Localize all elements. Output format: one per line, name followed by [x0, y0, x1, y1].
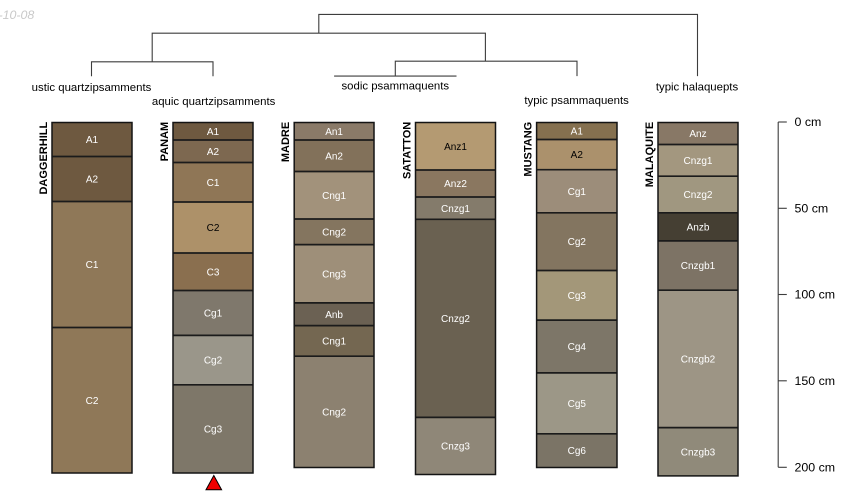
- svg-text:MUSTANG: MUSTANG: [523, 122, 535, 177]
- svg-text:Cnzg2: Cnzg2: [684, 190, 713, 201]
- svg-text:Cnzgb1: Cnzgb1: [681, 261, 716, 272]
- svg-text:Cg6: Cg6: [568, 446, 587, 457]
- svg-text:C3: C3: [207, 267, 220, 278]
- svg-text:Cnzgb2: Cnzgb2: [681, 355, 716, 366]
- svg-text:MALAQUITE: MALAQUITE: [644, 122, 656, 187]
- svg-text:A2: A2: [207, 147, 220, 158]
- svg-text:typic psammaquents: typic psammaquents: [524, 95, 629, 107]
- svg-text:sodic psammaquents: sodic psammaquents: [341, 81, 449, 93]
- svg-text:Cg2: Cg2: [568, 237, 587, 248]
- svg-text:Cnzg3: Cnzg3: [441, 442, 470, 453]
- svg-text:SATATTON: SATATTON: [402, 122, 414, 179]
- svg-text:Cg1: Cg1: [568, 187, 587, 198]
- svg-text:Cg2: Cg2: [204, 356, 223, 367]
- svg-text:Anz: Anz: [689, 129, 706, 140]
- svg-text:Cnzg1: Cnzg1: [684, 156, 713, 167]
- svg-text:typic halaquepts: typic halaquepts: [656, 81, 739, 93]
- svg-text:A1: A1: [571, 127, 584, 138]
- svg-text:aquic quartzipsamments: aquic quartzipsamments: [152, 96, 276, 108]
- svg-text:Cng3: Cng3: [322, 269, 346, 280]
- svg-text:50 cm: 50 cm: [795, 202, 829, 216]
- svg-text:Cnzgb3: Cnzgb3: [681, 447, 716, 458]
- svg-text:An2: An2: [325, 151, 343, 162]
- svg-text:A1: A1: [207, 127, 220, 138]
- svg-text:Cng2: Cng2: [322, 408, 346, 419]
- svg-text:C2: C2: [86, 396, 99, 407]
- svg-text:Cg3: Cg3: [204, 425, 223, 436]
- svg-text:MADRE: MADRE: [280, 122, 292, 162]
- svg-text:Anb: Anb: [325, 310, 343, 321]
- svg-text:150 cm: 150 cm: [795, 374, 836, 388]
- svg-text:Cng2: Cng2: [322, 227, 346, 238]
- svg-text:200 cm: 200 cm: [795, 461, 836, 475]
- svg-text:DAGGERHILL: DAGGERHILL: [38, 122, 50, 195]
- svg-text:A2: A2: [571, 150, 584, 161]
- svg-text:Anz1: Anz1: [444, 142, 467, 153]
- svg-text:PANAM: PANAM: [159, 122, 171, 162]
- svg-text:0 cm: 0 cm: [795, 115, 822, 129]
- svg-text:Cnzg1: Cnzg1: [441, 204, 470, 215]
- svg-text:-10-08: -10-08: [0, 8, 34, 22]
- svg-text:Cg1: Cg1: [204, 309, 223, 320]
- svg-text:100 cm: 100 cm: [795, 288, 836, 302]
- svg-text:A1: A1: [86, 135, 99, 146]
- svg-text:Cng1: Cng1: [322, 191, 346, 202]
- svg-text:C1: C1: [86, 260, 99, 271]
- svg-text:C2: C2: [207, 223, 220, 234]
- svg-text:Cng1: Cng1: [322, 337, 346, 348]
- svg-text:Anz2: Anz2: [444, 179, 467, 190]
- svg-text:Cg3: Cg3: [568, 291, 587, 302]
- svg-text:ustic quartzipsamments: ustic quartzipsamments: [32, 82, 152, 94]
- svg-text:Cg5: Cg5: [568, 399, 587, 410]
- svg-text:An1: An1: [325, 127, 343, 138]
- svg-text:C1: C1: [207, 178, 220, 189]
- svg-text:Cnzg2: Cnzg2: [441, 314, 470, 325]
- svg-text:Anzb: Anzb: [687, 223, 710, 234]
- svg-text:A2: A2: [86, 175, 99, 186]
- svg-text:Cg4: Cg4: [568, 342, 587, 353]
